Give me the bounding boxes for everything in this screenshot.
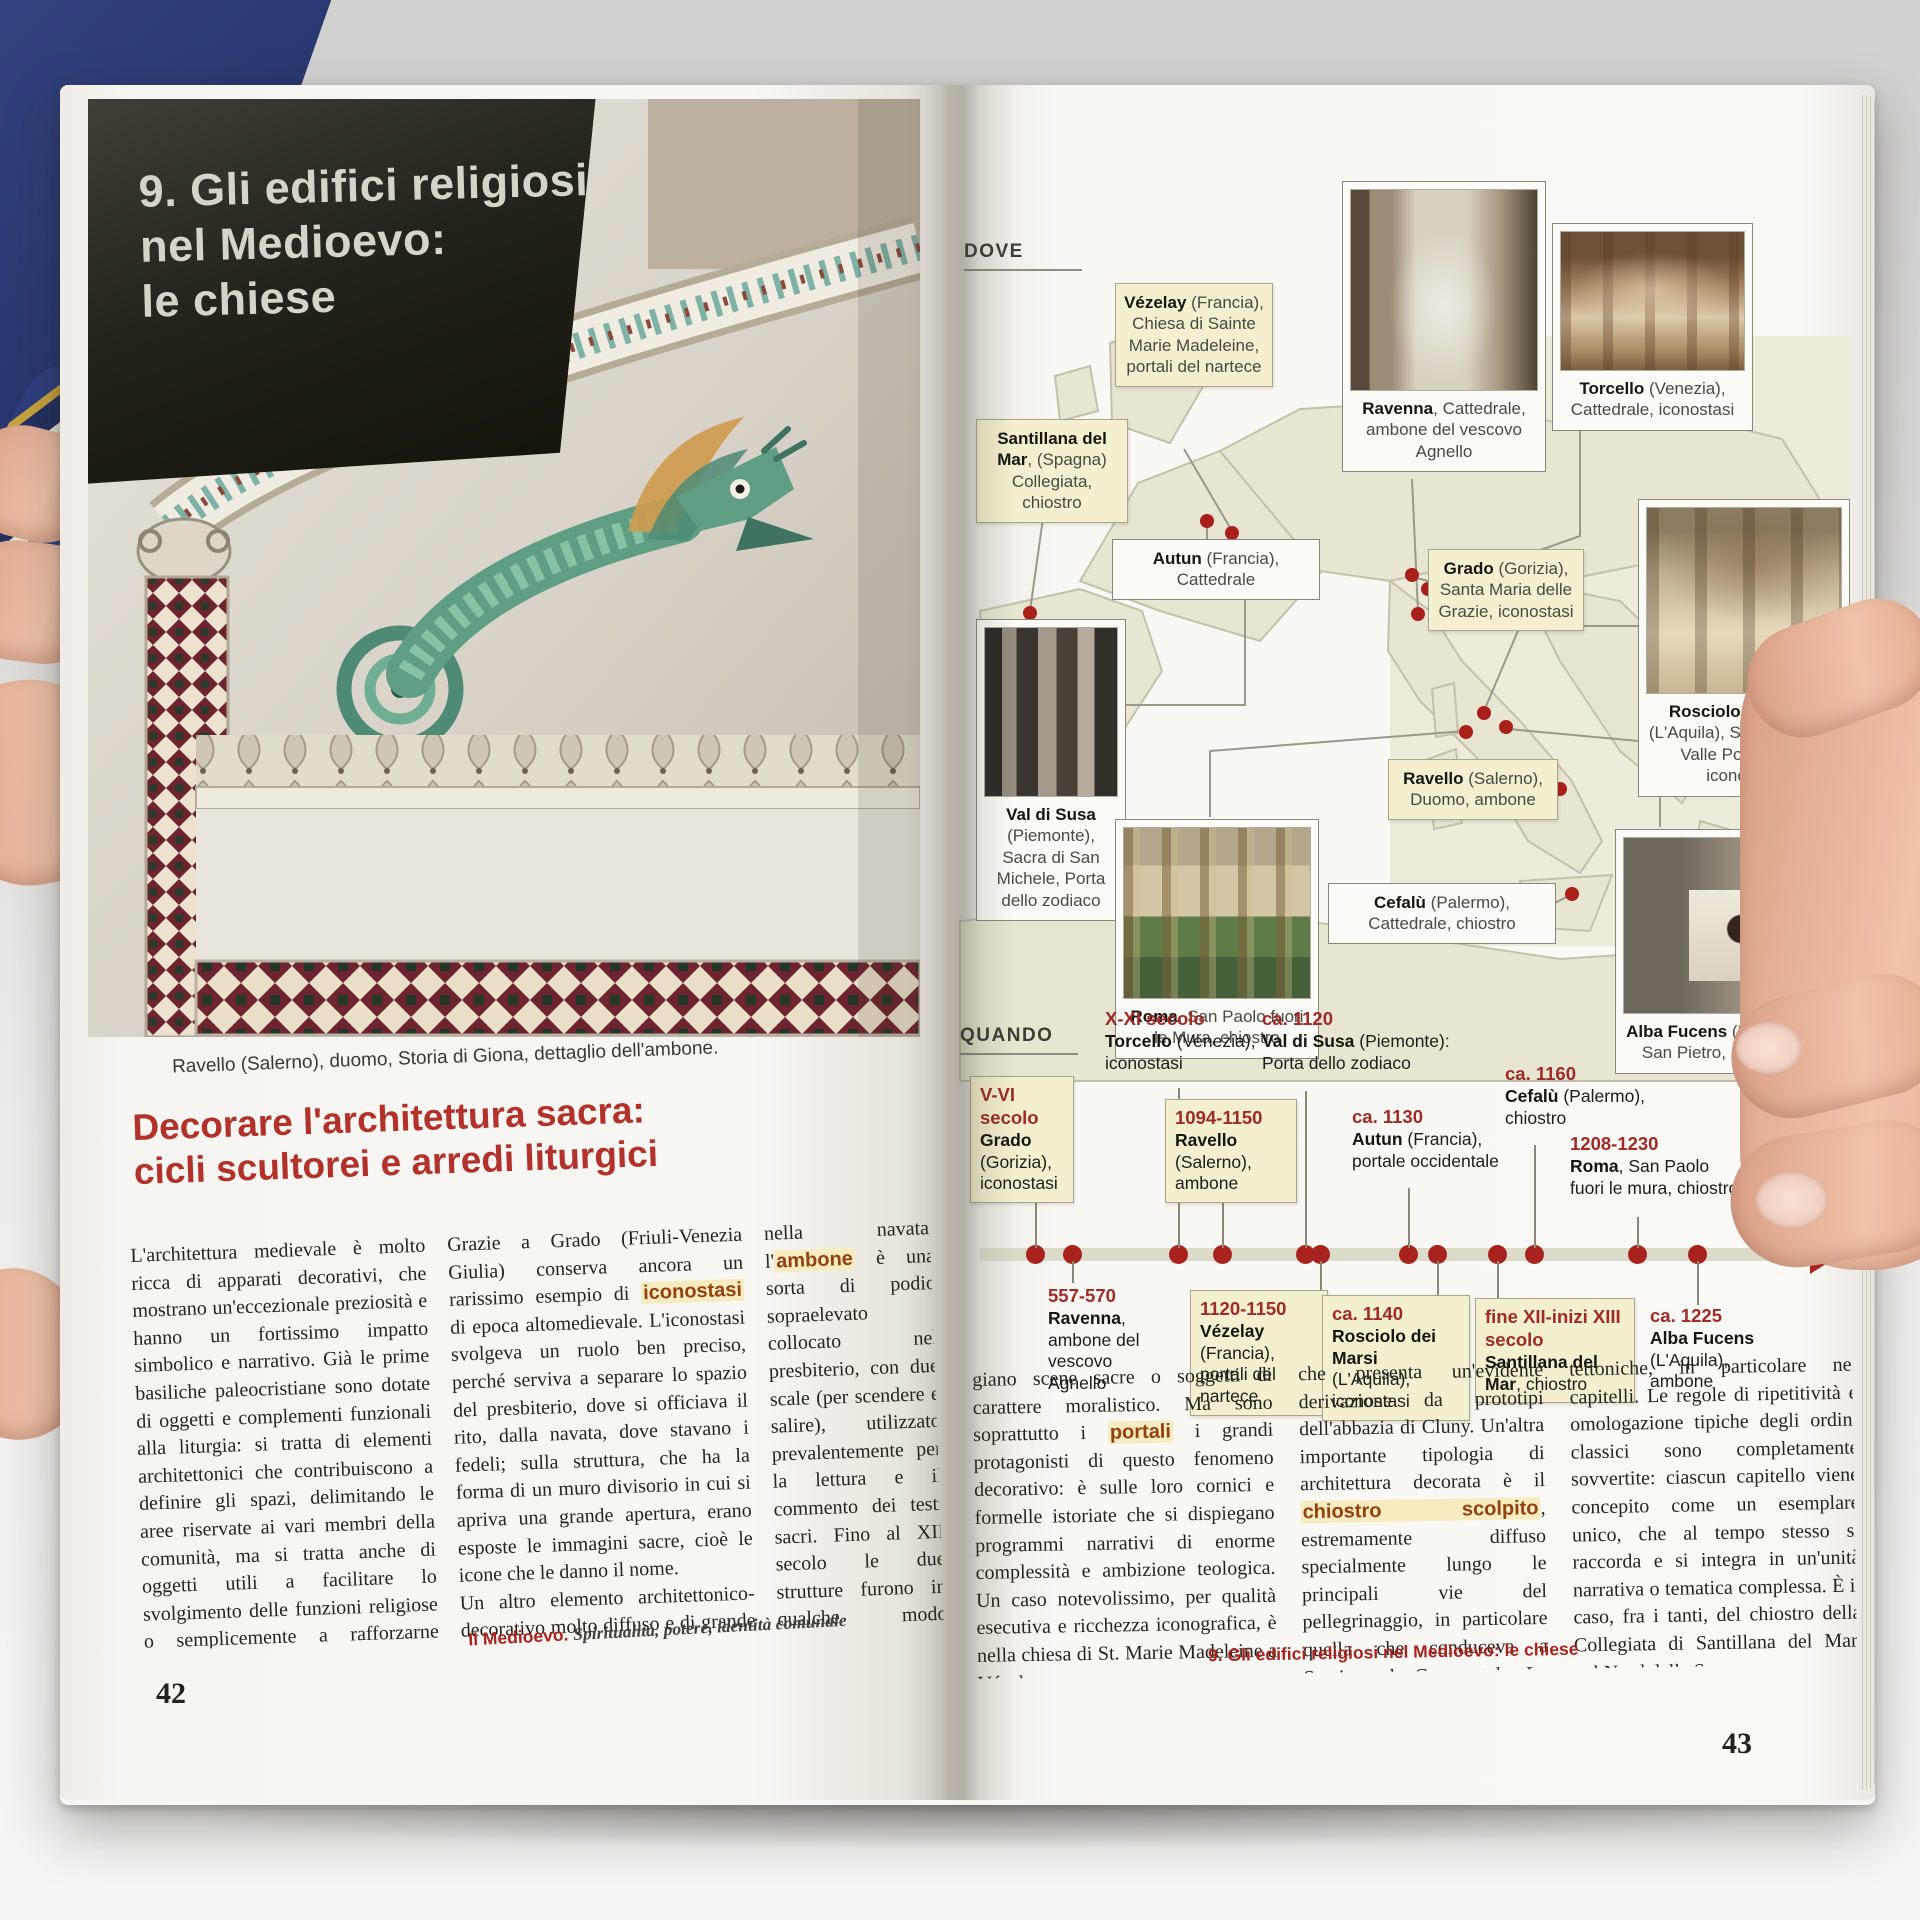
timeline-text: Val di Susa (Piemonte): Porta dello zodi…: [1262, 1031, 1452, 1074]
body-column: che presenta un'evidente derivazione da …: [1298, 1357, 1548, 1673]
timeline-connector: [1437, 1261, 1439, 1295]
ambone-mosaic-photo: 9. Gli edifici religiosi nel Medioevo: l…: [88, 99, 920, 1037]
left-page: 9. Gli edifici religiosi nel Medioevo: l…: [60, 85, 950, 1800]
map-photo-roma: [1123, 827, 1311, 999]
page-number-right: 43: [1722, 1727, 1752, 1761]
timeline-date: ca. 1160: [1505, 1063, 1655, 1086]
map-box-vezelay: Vézelay (Francia), Chiesa di Sainte Mari…: [1115, 283, 1273, 387]
highlight-term: portali: [1108, 1421, 1173, 1444]
book-spread: 9. Gli edifici religiosi nel Medioevo: l…: [60, 85, 1875, 1805]
body-text: di epoca altomedievale. L'iconostasi svo…: [450, 1306, 756, 1639]
timeline-text: Ravello (Salerno), ambone: [1175, 1130, 1287, 1195]
map-box-autun: Autun (Francia), Cattedrale: [1112, 539, 1320, 600]
timeline-entry-valdisusa: ca. 1120Val di Susa (Piemonte): Porta de…: [1262, 1008, 1452, 1074]
timeline-date: 1094-1150: [1175, 1107, 1287, 1130]
europe-map: Vézelay (Francia), Chiesa di Sainte Mari…: [960, 281, 1858, 1081]
right-page: DOVE: [950, 85, 1875, 1800]
body-text: che presenta un'evidente derivazione da …: [1298, 1359, 1545, 1496]
body-columns-left: L'architettura medievale è molto ricca d…: [130, 1215, 944, 1651]
timeline-date: ca. 1225: [1650, 1305, 1790, 1328]
body-text: i grandi protagonisti di questo fenomeno…: [973, 1419, 1277, 1679]
map-box-ravello: Ravello (Salerno), Duomo, ambone: [1388, 759, 1558, 820]
timeline-connector: [1697, 1261, 1699, 1305]
map-box-torcello: Torcello (Venezia), Cattedrale, iconosta…: [1552, 223, 1753, 431]
map-label-ravenna: Ravenna, Cattedrale, ambone del vescovo …: [1350, 398, 1538, 462]
timeline-connector: [1072, 1261, 1074, 1283]
body-column: Grazie a Grado (Friuli-Venezia Giulia) c…: [447, 1222, 756, 1640]
timeline-date: 1208-1230: [1570, 1133, 1740, 1156]
body-column: tettoniche, in particolare nei capitelli…: [1569, 1352, 1857, 1669]
timeline-text: Torcello (Venezia), iconostasi: [1105, 1031, 1285, 1074]
timeline-connector: [1534, 1145, 1536, 1248]
chapter-title-panel: 9. Gli edifici religiosi nel Medioevo: l…: [88, 99, 596, 484]
timeline-date: ca. 1140: [1332, 1303, 1460, 1326]
map-box-ravenna: Ravenna, Cattedrale, ambone del vescovo …: [1342, 181, 1546, 472]
timeline-connector: [1305, 1091, 1307, 1248]
map-label-autun: Autun (Francia), Cattedrale: [1121, 548, 1311, 591]
timeline-connector: [1408, 1188, 1410, 1248]
footer-series-title: Il Medioevo.: [468, 1624, 569, 1649]
timeline-date: ca. 1120: [1262, 1008, 1452, 1031]
timeline-date: X-XI secolo: [1105, 1008, 1285, 1031]
timeline-date: fine XII-inizi XIII secolo: [1485, 1306, 1625, 1352]
photo-scene: 9. Gli edifici religiosi nel Medioevo: l…: [0, 0, 1920, 1920]
body-columns-right: giano scene sacre o soggetti di caratter…: [972, 1352, 1857, 1679]
section-heading: Decorare l'architettura sacra: cicli scu…: [132, 1088, 659, 1194]
timeline-text: Autun (Francia), portale occidentale: [1352, 1129, 1512, 1172]
timeline-date: 557-570: [1048, 1285, 1168, 1308]
map-label-cefalu: Cefalù (Palermo), Cattedrale, chiostro: [1337, 892, 1547, 935]
map-label-torcello: Torcello (Venezia), Cattedrale, iconosta…: [1560, 378, 1745, 421]
map-photo-torcello: [1560, 231, 1745, 371]
map-photo-ravenna: [1350, 189, 1538, 391]
timeline-text: Cefalù (Palermo), chiostro: [1505, 1086, 1655, 1129]
map-label-ravello: Ravello (Salerno), Duomo, ambone: [1397, 768, 1549, 811]
map-label-grado: Grado (Gorizia), Santa Maria delle Grazi…: [1437, 558, 1575, 622]
body-text: tettoniche, in particolare nei capitelli…: [1569, 1354, 1857, 1669]
timeline-date: ca. 1130: [1352, 1106, 1512, 1129]
map-box-cefalu: Cefalù (Palermo), Cattedrale, chiostro: [1328, 883, 1556, 944]
map-box-grado: Grado (Gorizia), Santa Maria delle Grazi…: [1428, 549, 1584, 631]
timeline-date: 1120-1150: [1200, 1298, 1318, 1321]
body-text: L'architettura medievale è molto ricca d…: [130, 1235, 439, 1651]
right-hand-fingernail: [1756, 1172, 1828, 1228]
map-boxes-layer: Vézelay (Francia), Chiesa di Sainte Mari…: [960, 281, 1858, 1081]
image-caption: Ravello (Salerno), duomo, Storia di Gion…: [172, 1037, 719, 1078]
body-column: giano scene sacre o soggetti di caratter…: [972, 1362, 1277, 1679]
timeline-connector: [1497, 1261, 1499, 1298]
page-number-left: 42: [156, 1677, 186, 1711]
timeline-text: Roma, San Paolo fuori le mura, chiostro: [1570, 1156, 1740, 1199]
timeline-connector: [1320, 1261, 1322, 1290]
highlight-term: chiostro scolpito: [1300, 1497, 1540, 1523]
chapter-title: 9. Gli edifici religiosi nel Medioevo: l…: [138, 153, 592, 329]
highlight-term: iconostasi: [641, 1279, 745, 1305]
map-label-vezelay: Vézelay (Francia), Chiesa di Sainte Mari…: [1124, 292, 1264, 378]
timeline-connector: [1637, 1217, 1639, 1248]
highlight-term: ambone: [774, 1247, 855, 1272]
timeline-entry-torcello: X-XI secoloTorcello (Venezia), iconostas…: [1105, 1008, 1285, 1074]
right-hand-fingernail: [1736, 1022, 1802, 1074]
book-gutter: [905, 85, 1015, 1800]
timeline-entry-autun: ca. 1130Autun (Francia), portale occiden…: [1352, 1106, 1512, 1172]
timeline-entry-roma: 1208-1230Roma, San Paolo fuori le mura, …: [1570, 1133, 1740, 1199]
timeline-entry-cefalu: ca. 1160Cefalù (Palermo), chiostro: [1505, 1063, 1655, 1129]
timeline-entry-ravello: 1094-1150Ravello (Salerno), ambone: [1165, 1099, 1297, 1203]
body-column: L'architettura medievale è molto ricca d…: [130, 1233, 439, 1651]
